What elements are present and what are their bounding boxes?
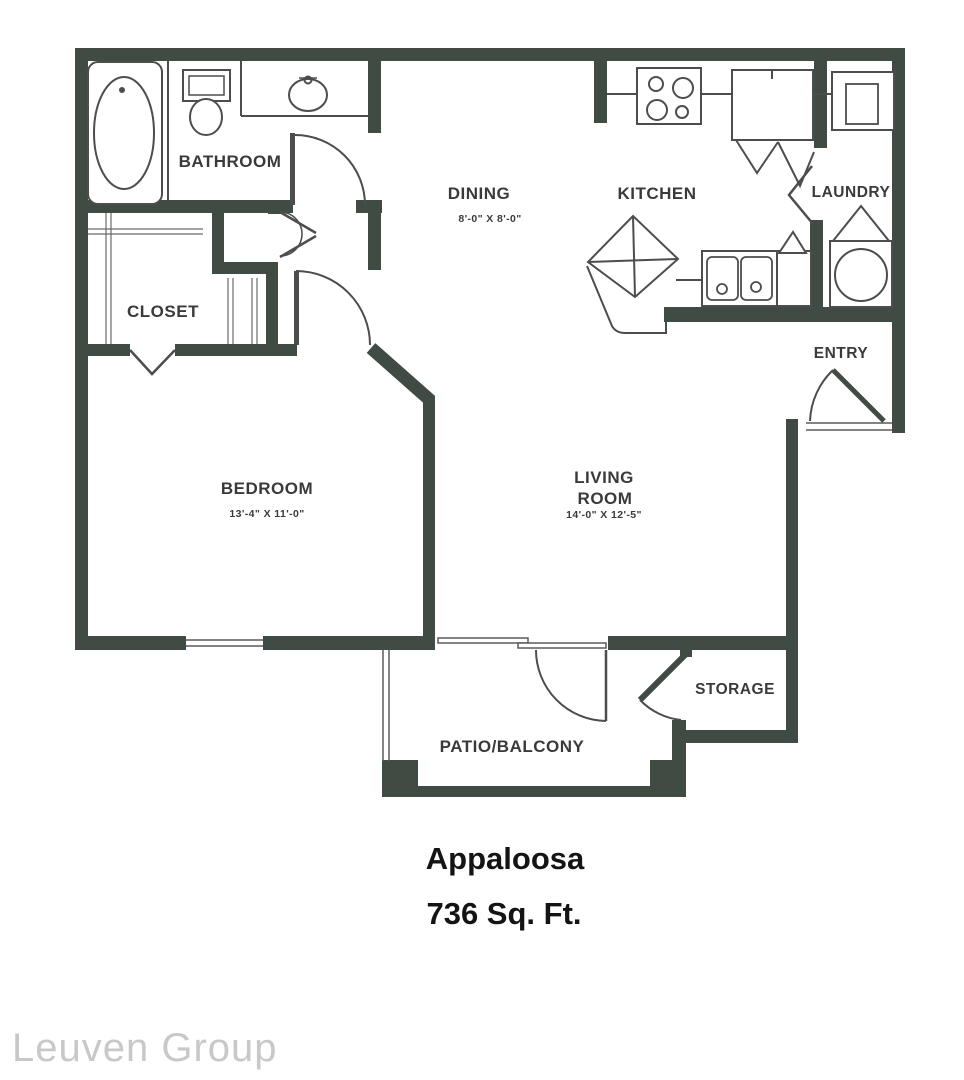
stove (637, 68, 701, 124)
linen-closet-doors (280, 212, 316, 257)
plan-title: Appaloosa (426, 841, 584, 877)
room-label-closet: CLOSET (127, 302, 199, 322)
washer (832, 72, 894, 130)
patio-sliding-door (435, 636, 608, 650)
watermark: Leuven Group (12, 1026, 278, 1071)
bedroom-corner-diagonal-wall (371, 348, 431, 401)
room-dims-living: 14'-0" X 12'-5" (566, 509, 642, 521)
linen-shelf-lines (228, 278, 257, 344)
room-dims-dining: 8'-0" X 8'-0" (458, 213, 521, 225)
kitchen-sink (702, 251, 778, 306)
bathtub (88, 62, 162, 204)
room-label-laundry: LAUNDRY (812, 184, 891, 202)
plan-area: 736 Sq. Ft. (426, 896, 581, 932)
closet-bifold-door (130, 350, 175, 374)
room-label-entry: ENTRY (814, 345, 868, 363)
room-label-living-line2: ROOM (578, 489, 633, 509)
bedroom-window (186, 636, 263, 650)
patio-railing (383, 650, 389, 761)
bathroom-sink (289, 77, 327, 112)
entry-door (810, 370, 884, 421)
room-dims-bedroom: 13'-4" X 11'-0" (229, 508, 304, 520)
room-label-dining: DINING (448, 184, 511, 204)
patio-swing-door (536, 650, 606, 721)
closet-shelf-lines (88, 213, 203, 344)
laundry-bifold-door (789, 166, 813, 224)
dryer (830, 206, 892, 307)
room-label-bathroom: BATHROOM (179, 152, 282, 172)
toilet (183, 70, 230, 135)
room-label-kitchen: KITCHEN (617, 184, 696, 204)
room-label-patio: PATIO/BALCONY (440, 737, 585, 757)
entry-threshold (806, 419, 892, 433)
storage-door (640, 653, 687, 720)
refrigerator (732, 70, 814, 186)
floorplan-page: BATHROOM CLOSET BEDROOM 13'-4" X 11'-0" … (0, 0, 964, 1080)
corner-cabinet (588, 216, 678, 297)
bedroom-door (294, 271, 370, 345)
kitchen-cabinet (777, 232, 811, 306)
room-label-bedroom: BEDROOM (221, 479, 313, 499)
room-label-living-line1: LIVING (574, 468, 634, 488)
room-label-storage: STORAGE (695, 681, 775, 699)
bathroom-door (290, 133, 365, 205)
